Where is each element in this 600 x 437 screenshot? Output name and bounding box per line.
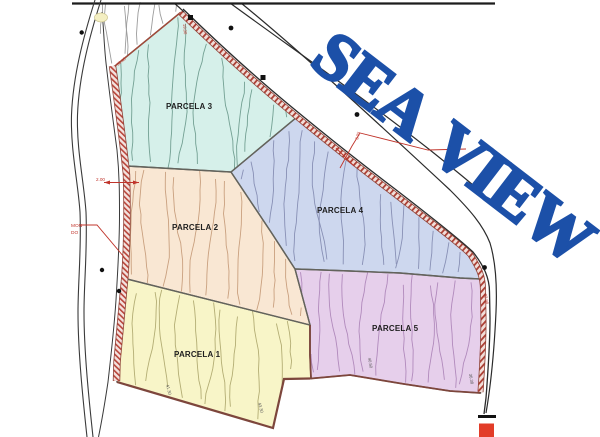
svg-text:19.00: 19.00 [182, 24, 188, 36]
svg-text:PARCELA 5: PARCELA 5 [372, 324, 419, 333]
svg-text:2.00: 2.00 [96, 177, 105, 182]
svg-text:PARCELA 4: PARCELA 4 [317, 206, 364, 215]
svg-text:MON: MON [71, 223, 83, 229]
svg-text:PARCELA 1: PARCELA 1 [174, 350, 221, 359]
svg-text:PARCELA 3: PARCELA 3 [166, 102, 213, 111]
svg-text:DO: DO [71, 230, 78, 236]
svg-text:PARCELA 2: PARCELA 2 [172, 223, 219, 232]
